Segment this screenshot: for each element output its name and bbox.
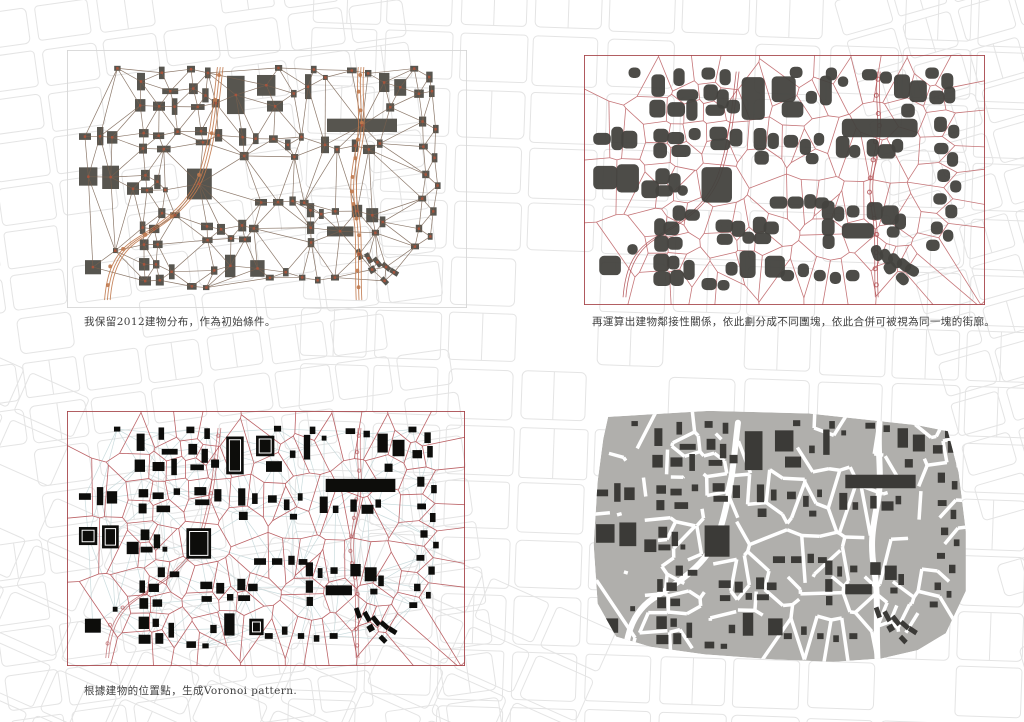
panel-adjacency-clusters [584, 55, 985, 305]
panel-voronoi-pattern [67, 411, 465, 666]
caption-adjacency-clusters: 再運算出建物鄰接性關係，依此劃分成不同團塊，依此合併可被視為同一塊的街廓。 [592, 314, 995, 329]
merged-blocks-map [584, 405, 986, 667]
caption-voronoi-pattern: 根據建物的位置點，生成Voronoi pattern. [84, 683, 297, 698]
triangulation-map [67, 50, 467, 308]
caption-initial-buildings: 我保留2012建物分布，作為初始條件。 [84, 314, 276, 329]
voronoi-blobs-map [584, 55, 985, 305]
voronoi-map [67, 411, 465, 666]
panel-merged-blocks [584, 405, 986, 667]
panel-initial-buildings [67, 50, 467, 308]
portfolio-page: 我保留2012建物分布，作為初始條件。 再運算出建物鄰接性關係，依此劃分成不同團… [0, 0, 1024, 722]
